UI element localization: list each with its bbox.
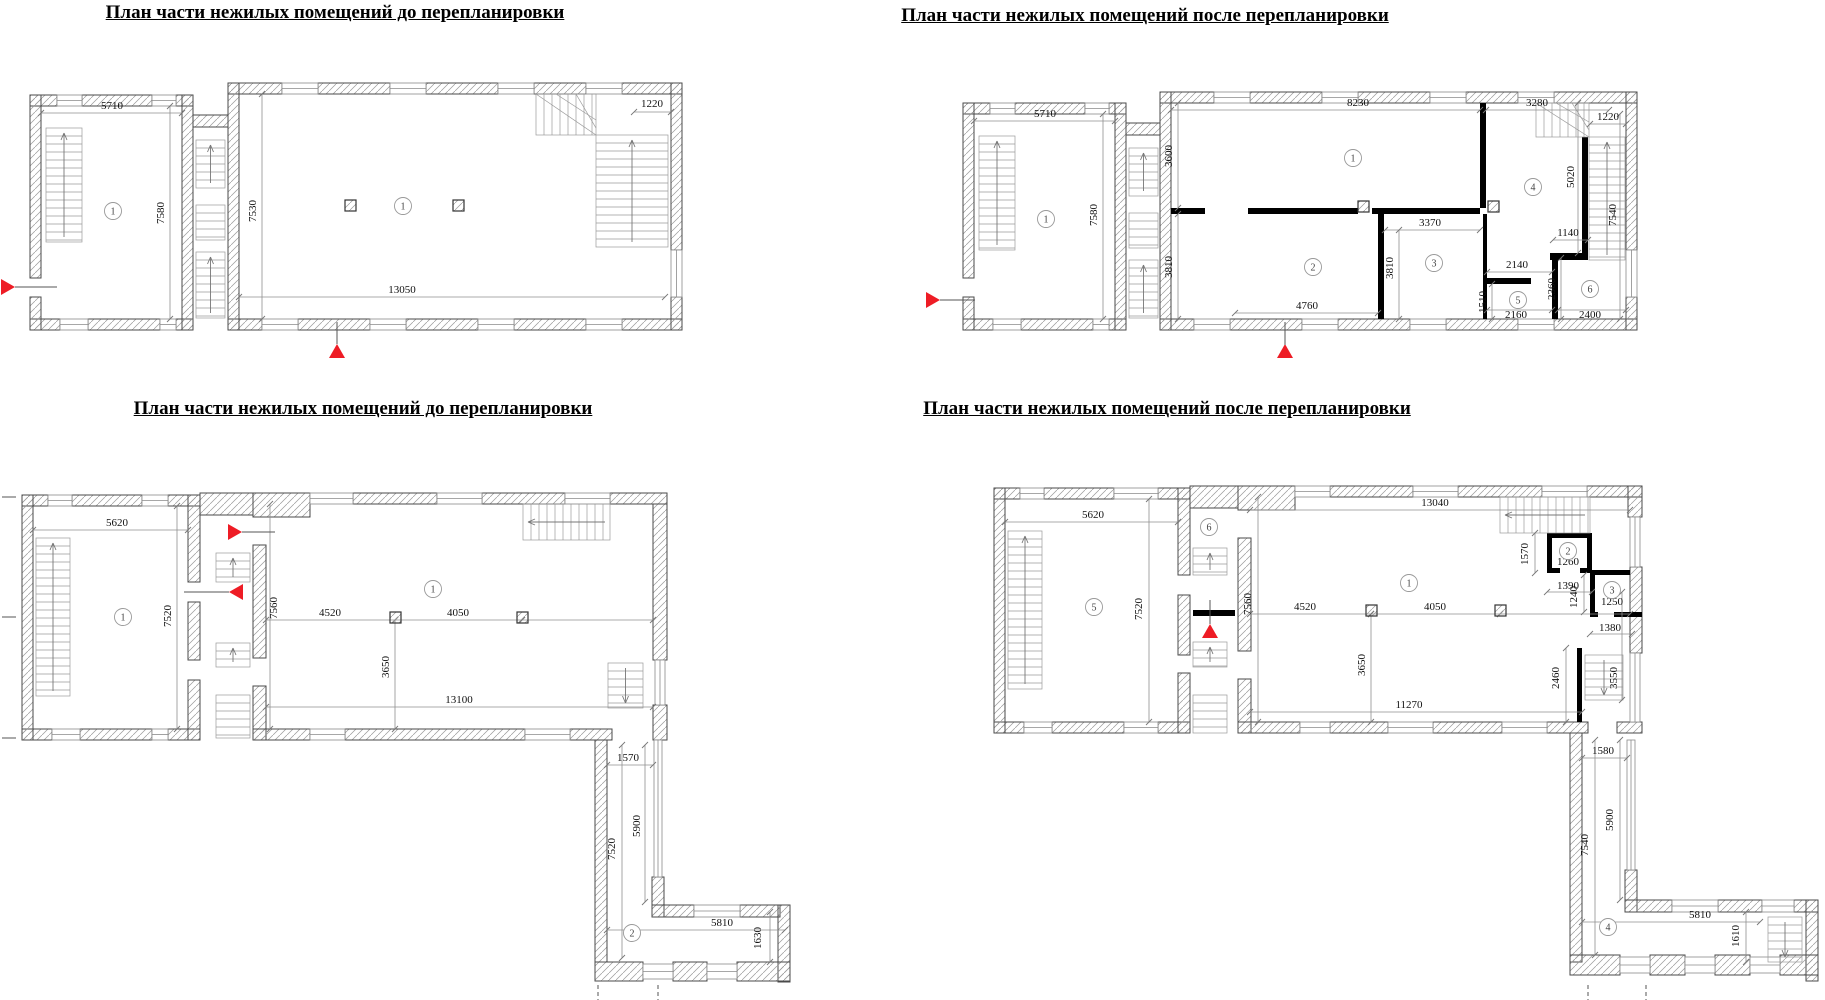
column-symbol <box>1495 605 1506 616</box>
dimension-label: 1570 <box>1519 543 1531 566</box>
floor-plan-before-1: 57107580753013050122011 <box>1 83 682 358</box>
wall-segment <box>1650 955 1685 975</box>
room-number-badge: 2 <box>1560 543 1577 560</box>
wall-segment <box>1115 103 1126 330</box>
floor-plans-drawing: 57107580753013050122011 5710758082303280… <box>0 0 1825 1000</box>
svg-text:6: 6 <box>1207 523 1212 534</box>
new-partition-wall <box>1480 103 1486 208</box>
dimension-label: 3810 <box>1163 256 1175 279</box>
dimension-label: 2140 <box>1506 259 1529 271</box>
room-number-badge: 1 <box>1401 575 1418 592</box>
dimension-label: 7520 <box>1133 598 1145 621</box>
dimension-label: 3650 <box>380 656 392 679</box>
drawing-canvas: План части нежилых помещений до переплан… <box>0 0 1825 1000</box>
wall-segment <box>1617 722 1642 733</box>
wall-segment <box>1178 673 1190 733</box>
wall-segment <box>30 297 41 330</box>
dimension-label: 5620 <box>106 517 129 529</box>
wall-segment <box>72 495 142 506</box>
new-partition-wall <box>1487 278 1531 284</box>
wall-segment <box>1250 92 1322 103</box>
wall-segment <box>253 545 266 658</box>
floor-plan-after-2: 5620752013040756045204050365011270157012… <box>994 486 1818 1000</box>
room-number-badge: 6 <box>1582 281 1599 298</box>
dimension-label: 1220 <box>641 98 664 110</box>
column-symbol <box>345 200 356 211</box>
dimension-label: 3600 <box>1163 145 1175 168</box>
dimension-label: 3650 <box>1356 654 1368 677</box>
wall-segment <box>595 962 643 981</box>
dimension-label: 2360 <box>1546 278 1558 301</box>
room-number-badge: 1 <box>105 203 122 220</box>
wall-segment <box>188 602 200 660</box>
svg-text:1: 1 <box>431 585 436 596</box>
wall-segment <box>1230 319 1302 330</box>
floor-plan-before-2: 5620752075604520405036501310015707520590… <box>2 493 790 1000</box>
dimension-label: 11270 <box>1395 699 1423 711</box>
wall-segment <box>253 493 310 517</box>
svg-text:1: 1 <box>121 613 126 624</box>
dimension-label: 7580 <box>155 202 167 225</box>
wall-segment <box>1338 319 1410 330</box>
wall-segment <box>1238 722 1300 733</box>
dimension-label: 3550 <box>1608 667 1620 690</box>
wall-segment <box>182 95 193 330</box>
red-direction-marker <box>926 292 940 308</box>
dimension-label: 2160 <box>1505 309 1528 321</box>
wall-segment <box>1330 722 1388 733</box>
wall-segment <box>188 680 200 740</box>
room-number-badge: 5 <box>1510 292 1527 309</box>
wall-segment <box>1554 92 1637 103</box>
dimension-label: 1140 <box>1557 227 1579 239</box>
dimension-label: 5620 <box>1082 509 1105 521</box>
dimension-label: 13040 <box>1421 497 1449 509</box>
wall-segment <box>963 297 974 330</box>
dimension-label: 1570 <box>617 752 640 764</box>
svg-text:4: 4 <box>1531 183 1536 194</box>
staircase <box>1129 213 1158 248</box>
wall-segment <box>193 115 228 127</box>
dimension-label: 4760 <box>1296 300 1319 312</box>
wall-segment <box>1630 567 1642 653</box>
wall-segment <box>80 729 152 740</box>
new-partition-wall <box>1372 208 1480 214</box>
dimension-label: 7560 <box>1242 593 1254 616</box>
dimension-label: 5810 <box>711 917 734 929</box>
red-direction-marker <box>1202 624 1218 638</box>
new-partition-wall <box>1577 648 1582 722</box>
column-symbol <box>390 612 401 623</box>
wall-segment <box>740 905 780 917</box>
room-number-badge: 3 <box>1426 255 1443 272</box>
dimension-label: 1580 <box>1592 745 1615 757</box>
red-direction-marker <box>1 279 15 295</box>
room-number-badge: 1 <box>115 609 132 626</box>
dimension-label: 5810 <box>1689 909 1712 921</box>
room-number-badge: 6 <box>1201 519 1218 536</box>
wall-segment <box>671 297 682 330</box>
svg-text:2: 2 <box>630 929 635 940</box>
wall-segment <box>1330 486 1413 497</box>
dimension-label: 3810 <box>1384 257 1396 280</box>
new-partition-wall <box>1590 612 1598 617</box>
new-partition-wall <box>1582 137 1588 260</box>
floor-plan-after-1: 5710758082303280122036003810337038104760… <box>926 92 1637 358</box>
wall-segment <box>994 488 1005 733</box>
dimension-label: 5020 <box>1565 166 1577 189</box>
svg-text:5: 5 <box>1516 296 1521 307</box>
dimension-label: 7560 <box>268 597 280 620</box>
room-number-badge: 4 <box>1600 919 1617 936</box>
dimension-label: 5900 <box>1604 809 1616 832</box>
svg-text:6: 6 <box>1588 285 1593 296</box>
wall-segment <box>653 705 667 740</box>
dimension-label: 5710 <box>101 100 124 112</box>
wall-segment <box>1044 488 1114 499</box>
wall-segment <box>188 495 200 582</box>
dimension-label: 1380 <box>1599 622 1622 634</box>
dimension-label: 7580 <box>1088 204 1100 227</box>
new-partition-wall <box>1587 533 1592 573</box>
svg-text:3: 3 <box>1432 259 1437 270</box>
dimension-label: 13050 <box>388 284 416 296</box>
room-number-badge: 1 <box>1038 211 1055 228</box>
wall-segment <box>345 729 525 740</box>
wall-segment <box>1570 955 1620 975</box>
wall-segment <box>737 962 790 981</box>
room-number-badge: 5 <box>1086 599 1103 616</box>
svg-text:1: 1 <box>401 202 406 213</box>
wall-segment <box>1715 955 1750 975</box>
svg-text:2: 2 <box>1311 263 1316 274</box>
staircase <box>216 695 250 738</box>
svg-text:1: 1 <box>111 207 116 218</box>
dimension-label: 2460 <box>1550 667 1562 690</box>
column-symbol <box>453 200 464 211</box>
svg-text:5: 5 <box>1092 603 1097 614</box>
new-partition-wall <box>1547 533 1592 538</box>
svg-text:4: 4 <box>1606 923 1611 934</box>
wall-segment <box>652 905 694 917</box>
column-symbol <box>517 612 528 623</box>
dimension-label: 1220 <box>1597 111 1620 123</box>
room-number-badge: 4 <box>1525 179 1542 196</box>
new-partition-wall <box>1248 208 1358 214</box>
wall-segment <box>1626 297 1637 330</box>
wall-segment <box>406 319 478 330</box>
red-direction-marker <box>1277 344 1293 358</box>
wall-segment <box>1238 486 1295 510</box>
new-partition-wall <box>1193 610 1235 616</box>
new-partition-wall <box>1171 208 1205 214</box>
wall-segment <box>1628 486 1642 517</box>
wall-segment <box>253 729 310 740</box>
wall-segment <box>1021 319 1093 330</box>
dimension-label: 1510 <box>1477 291 1489 314</box>
svg-text:1: 1 <box>1044 215 1049 226</box>
wall-segment <box>88 319 160 330</box>
dimension-label: 1610 <box>1730 925 1742 948</box>
wall-segment <box>1178 595 1190 655</box>
svg-text:3: 3 <box>1610 586 1615 597</box>
dimension-label: 3370 <box>1419 217 1442 229</box>
wall-segment <box>1190 486 1238 508</box>
wall-segment <box>1126 123 1160 135</box>
room-number-badge: 1 <box>425 581 442 598</box>
dimension-label: 7540 <box>1579 834 1591 857</box>
wall-segment <box>1625 900 1672 912</box>
dimension-label: 1240 <box>1568 586 1580 609</box>
wall-segment <box>482 493 565 504</box>
wall-segment <box>426 83 498 94</box>
wall-segment <box>1466 92 1518 103</box>
wall-segment <box>570 729 612 740</box>
dimension-label: 5900 <box>631 815 643 838</box>
wall-segment <box>318 83 390 94</box>
dimension-label: 7520 <box>606 838 618 861</box>
wall-segment <box>671 83 682 250</box>
wall-segment <box>30 95 41 278</box>
dimension-label: 7530 <box>247 200 259 223</box>
dimension-label: 8230 <box>1347 97 1370 109</box>
dimension-label: 4050 <box>1424 601 1447 613</box>
wall-segment <box>673 962 707 981</box>
staircase <box>196 205 225 240</box>
wall-segment <box>653 504 667 660</box>
red-direction-marker <box>229 584 243 600</box>
room-number-badge: 1 <box>1345 150 1362 167</box>
dimension-label: 4520 <box>319 607 342 619</box>
svg-text:1: 1 <box>1407 579 1412 590</box>
wall-segment <box>1160 92 1171 330</box>
dimension-label: 2400 <box>1579 309 1602 321</box>
room-number-badge: 1 <box>395 198 412 215</box>
dimension-label: 3280 <box>1526 97 1549 109</box>
red-direction-marker <box>329 344 345 358</box>
column-symbol <box>1358 201 1369 212</box>
dimension-label: 4520 <box>1294 601 1317 613</box>
new-partition-wall <box>1547 533 1552 573</box>
column-symbol <box>1488 201 1499 212</box>
wall-segment <box>1626 92 1637 250</box>
wall-segment <box>1458 486 1542 497</box>
wall-segment <box>514 319 586 330</box>
wall-segment <box>298 319 370 330</box>
wall-segment <box>1718 900 1762 912</box>
new-partition-wall <box>1547 568 1560 573</box>
wall-segment <box>534 83 586 94</box>
column-symbol <box>1366 605 1377 616</box>
wall-segment <box>1052 722 1124 733</box>
wall-segment <box>228 83 239 330</box>
room-number-badge: 3 <box>1604 582 1621 599</box>
new-partition-wall <box>1590 570 1630 575</box>
wall-segment <box>353 493 437 504</box>
dimension-label: 13100 <box>445 694 473 706</box>
svg-text:1: 1 <box>1351 154 1356 165</box>
wall-segment <box>1547 722 1588 733</box>
dimension-label: 5710 <box>1034 108 1057 120</box>
red-direction-marker <box>228 524 242 540</box>
dimension-label: 4050 <box>447 607 470 619</box>
wall-segment <box>200 493 253 515</box>
dimension-label: 1630 <box>752 927 764 950</box>
wall-segment <box>1780 955 1818 975</box>
dimension-label: 7520 <box>162 605 174 628</box>
wall-segment <box>963 103 974 278</box>
room-number-badge: 2 <box>624 925 641 942</box>
wall-segment <box>610 493 667 504</box>
dimension-label: 7540 <box>1607 204 1619 227</box>
wall-segment <box>1178 488 1190 575</box>
svg-text:2: 2 <box>1566 547 1571 558</box>
wall-segment <box>1433 722 1502 733</box>
room-number-badge: 2 <box>1305 259 1322 276</box>
